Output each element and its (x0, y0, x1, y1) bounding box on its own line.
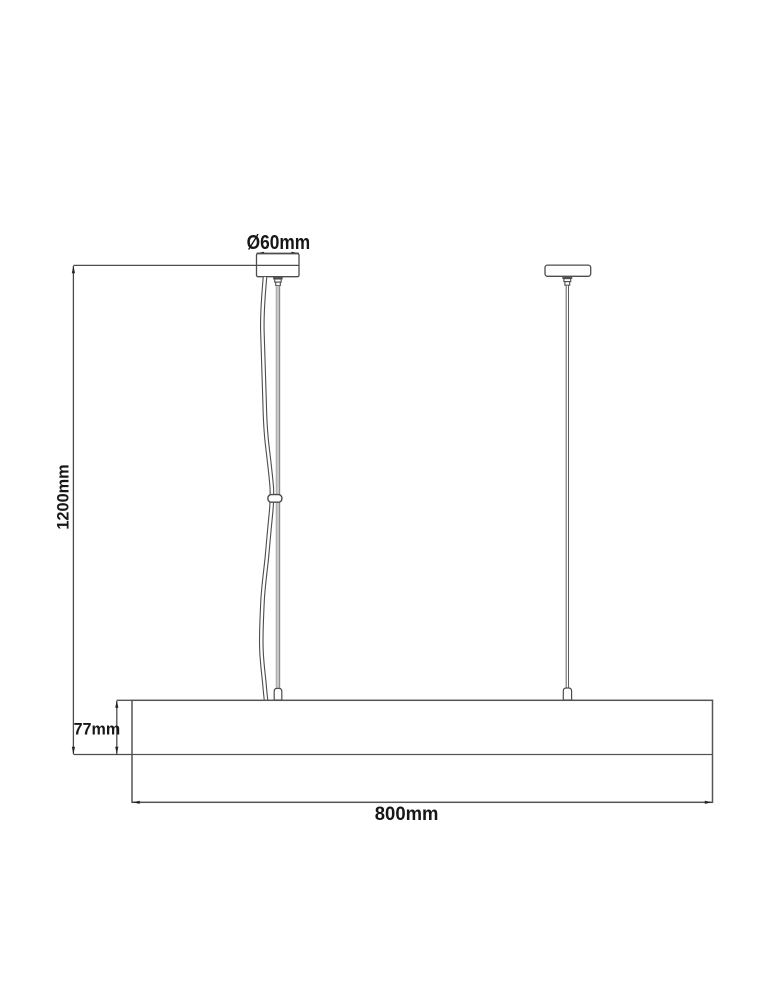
svg-text:800mm: 800mm (375, 804, 439, 825)
svg-text:77mm: 77mm (74, 719, 121, 738)
svg-text:1200mm: 1200mm (54, 464, 73, 529)
svg-text:Ø60mm: Ø60mm (247, 232, 311, 254)
